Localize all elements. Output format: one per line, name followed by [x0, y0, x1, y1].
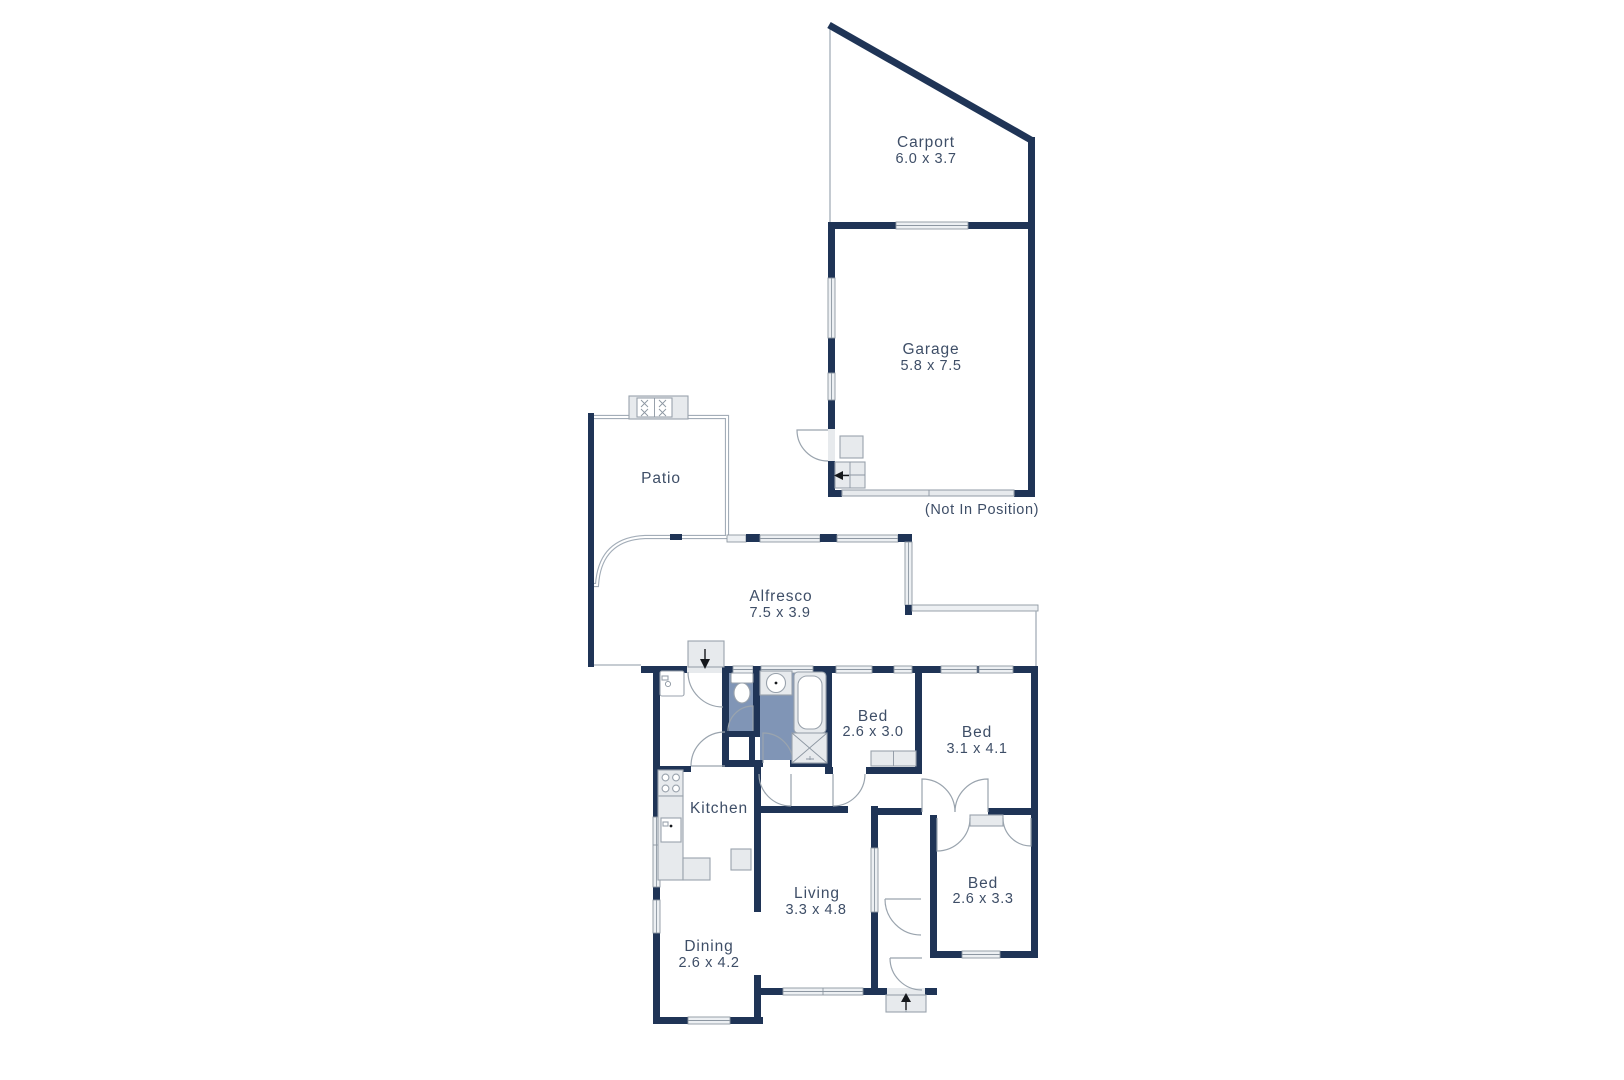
alfresco-rail — [912, 605, 1038, 611]
floorplan-drawing: Carport 6.0 x 3.7 Garage 5.8 x 7.5 (Not … — [0, 0, 1624, 1080]
bed1-robe — [871, 751, 916, 766]
garage-bottom-wall-left — [828, 490, 842, 497]
room-carport — [829, 25, 1035, 227]
bed3-left-wall — [930, 815, 937, 958]
dining-label: Dining — [684, 938, 733, 955]
bed3-label: Bed — [968, 875, 998, 892]
garage-door — [842, 490, 1014, 496]
bed2-door-arc-left — [922, 779, 955, 812]
living-dims: 3.3 x 4.8 — [785, 902, 846, 918]
dining-dims: 2.6 x 4.2 — [678, 955, 739, 971]
bed3-robe-door-arc — [937, 818, 970, 851]
laundry-door-arc — [691, 732, 725, 766]
water-heater-icon — [840, 436, 863, 458]
bed1-dims: 2.6 x 3.0 — [842, 724, 903, 740]
room-alfresco — [594, 534, 1038, 666]
floorplan-page: Carport 6.0 x 3.7 Garage 5.8 x 7.5 (Not … — [0, 0, 1624, 1080]
carport-label: Carport — [897, 134, 955, 151]
patio-label: Patio — [641, 470, 681, 487]
not-in-position-note: (Not In Position) — [925, 502, 1039, 518]
kitchen-island — [731, 849, 751, 870]
kitchen-label: Kitchen — [690, 800, 748, 817]
bathroom-sink-icon — [760, 671, 792, 695]
bed2-dims: 3.1 x 4.1 — [946, 741, 1007, 757]
bed1-label: Bed — [858, 708, 888, 725]
hall-cupboard-arc — [885, 899, 921, 935]
patio-post — [670, 534, 682, 540]
bed2-label: Bed — [962, 724, 992, 741]
alfresco-top-link — [727, 535, 746, 542]
washing-machine-icon — [660, 671, 684, 696]
carport-right-wall — [1028, 137, 1035, 227]
porch-step — [886, 993, 926, 1012]
patio-left-wall — [588, 413, 594, 667]
carport-roof-wall — [829, 25, 1031, 140]
bed2-door-arc-right — [955, 779, 988, 812]
garage-side-door-arc — [797, 430, 828, 461]
bed3-entry-door-arc — [1003, 818, 1031, 846]
alfresco-dims: 7.5 x 3.9 — [749, 605, 810, 621]
alfresco-post-3 — [905, 605, 912, 615]
garage-bottom-wall-right — [1014, 490, 1035, 497]
garage-right-wall — [1028, 222, 1035, 497]
alfresco-corner-post — [898, 534, 912, 542]
hall-door-arc — [759, 774, 791, 806]
bed1-door-arc — [833, 774, 865, 806]
garage-dims: 5.8 x 7.5 — [900, 358, 961, 374]
front-door-arc — [890, 958, 922, 990]
shower-icon — [792, 733, 827, 763]
bed3-robe — [970, 815, 1003, 826]
alfresco-post-1 — [746, 534, 760, 542]
living-label: Living — [794, 885, 840, 902]
stove-icon — [658, 770, 683, 796]
room-patio — [588, 396, 727, 667]
alfresco-label: Alfresco — [749, 588, 812, 605]
bathtub-icon — [794, 672, 826, 733]
bbq-icon — [629, 396, 688, 419]
patio-outline — [594, 417, 727, 585]
bed3-dims: 2.6 x 3.3 — [952, 891, 1013, 907]
garage-side-door-threshold — [828, 429, 835, 461]
alfresco-post-2 — [820, 534, 837, 542]
carport-dims: 6.0 x 3.7 — [895, 151, 956, 167]
entry-door-arc — [688, 672, 723, 707]
labels: Carport 6.0 x 3.7 Garage 5.8 x 7.5 (Not … — [641, 134, 1039, 971]
garage-label: Garage — [902, 341, 959, 358]
